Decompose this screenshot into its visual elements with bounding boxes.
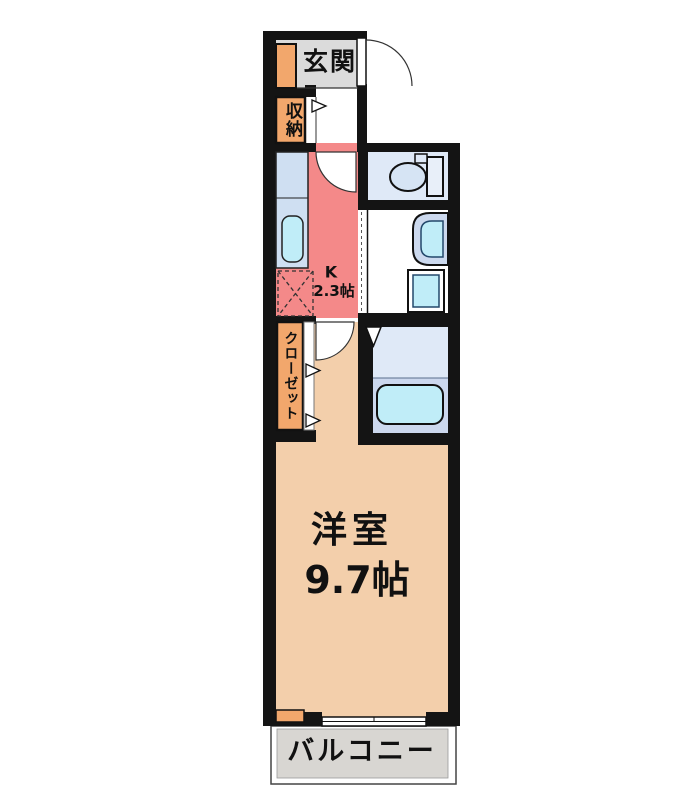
kitchen-label: K	[325, 265, 337, 282]
vanity-basin	[421, 221, 443, 257]
entrance-door-arc	[366, 40, 412, 86]
wall-hall-kitchen	[263, 143, 316, 152]
storage-label: 収納	[282, 102, 300, 138]
wall-toilet-washroom	[358, 200, 448, 210]
wall-top	[263, 31, 367, 40]
entrance-label: 玄関	[303, 49, 357, 75]
kitchen-size-label: 2.3帖	[313, 284, 355, 300]
toilet-tank	[427, 157, 443, 196]
wall-bottom-right	[426, 712, 460, 726]
wall-stub-storage	[305, 85, 316, 97]
main-room-size-label: 9.7帖	[304, 561, 409, 601]
wall-bathroom-bottom	[358, 433, 448, 445]
bathtub	[377, 385, 443, 424]
wall-left	[263, 31, 276, 726]
washroom-sliding-door	[359, 210, 369, 313]
floorplan-drawing	[0, 0, 698, 800]
balcony-step	[276, 710, 304, 722]
kitchen-sink	[282, 216, 303, 262]
wall-right	[448, 143, 460, 726]
main-room-label: 洋室	[311, 512, 393, 550]
shoe-cabinet	[276, 44, 296, 88]
toilet-flush-box	[415, 154, 427, 163]
toilet-bowl	[390, 163, 426, 191]
balcony-window	[322, 717, 426, 726]
floorplan-canvas: 玄関 収納 K 2.3帖 クローゼット 洋室 9.7帖 バルコニー	[0, 0, 698, 800]
closet-label: クローゼット	[283, 331, 298, 421]
washing-machine-tub	[413, 275, 439, 307]
wall-wet-area-top	[357, 143, 460, 152]
entrance-door-panel	[357, 38, 366, 86]
balcony-label: バルコニー	[287, 738, 436, 766]
wall-closet-bottom	[263, 430, 316, 442]
hallway-floor	[305, 88, 358, 152]
wall-entrance-right	[357, 84, 367, 152]
